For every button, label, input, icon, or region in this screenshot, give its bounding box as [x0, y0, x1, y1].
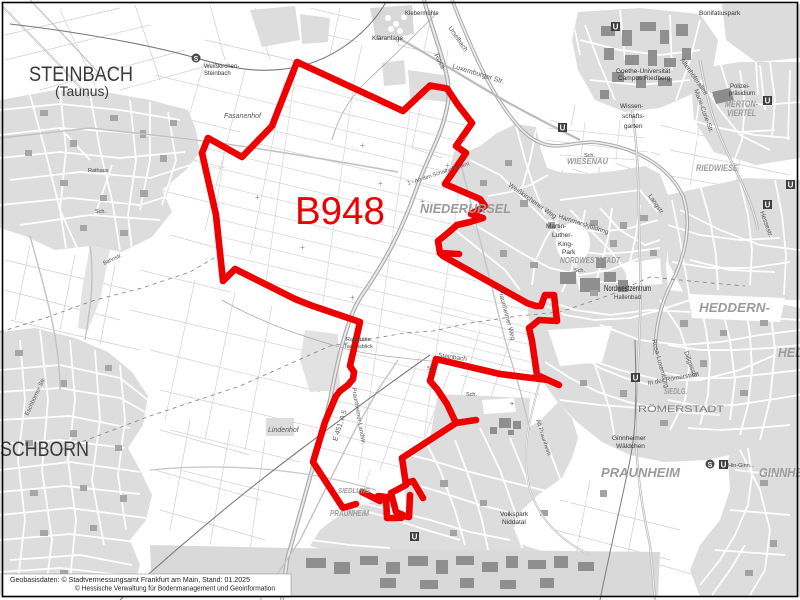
svg-text:Sch.: Sch. — [574, 268, 585, 274]
svg-text:U: U — [765, 97, 771, 106]
svg-text:Park: Park — [562, 249, 576, 256]
svg-text:NIEDERURSEL: NIEDERURSEL — [420, 202, 511, 216]
svg-text:(Taunus): (Taunus) — [55, 83, 109, 99]
svg-text:U: U — [788, 181, 794, 190]
svg-text:U: U — [765, 201, 771, 210]
svg-text:Luther-: Luther- — [552, 232, 573, 239]
svg-text:PRAUNHEIM: PRAUNHEIM — [601, 465, 681, 480]
svg-text:Goethe-Universität: Goethe-Universität — [616, 68, 670, 75]
svg-text:Wissen-: Wissen- — [620, 103, 643, 110]
svg-text:Rathaus: Rathaus — [88, 168, 109, 174]
svg-text:B948: B948 — [295, 190, 385, 233]
svg-text:garten: garten — [624, 123, 643, 130]
svg-text:Taunusblick: Taunusblick — [344, 344, 373, 350]
svg-text:RIEDWIESE: RIEDWIESE — [696, 163, 739, 173]
svg-text:SIEDLUNG: SIEDLUNG — [338, 486, 370, 495]
svg-text:Sch.: Sch. — [466, 392, 477, 398]
svg-text:Sch.: Sch. — [427, 366, 438, 372]
svg-text:+: + — [462, 135, 467, 144]
svg-text:Hallenbad: Hallenbad — [614, 295, 641, 301]
svg-text:schafts-: schafts- — [622, 113, 645, 120]
svg-text:Sch.: Sch. — [584, 153, 595, 159]
svg-text:+: + — [510, 401, 514, 408]
svg-text:SIEDLG.: SIEDLG. — [664, 387, 687, 396]
svg-text:U: U — [721, 461, 727, 470]
svg-text:© Hessische Verwaltung für Bod: © Hessische Verwaltung für Bodenmanageme… — [75, 585, 275, 593]
svg-text:Volkspark: Volkspark — [500, 511, 529, 518]
svg-text:Polizei-: Polizei- — [730, 84, 750, 90]
svg-text:Raststätte: Raststätte — [346, 337, 371, 343]
svg-text:Sch.: Sch. — [95, 209, 106, 215]
svg-text:+: + — [378, 179, 383, 188]
svg-text:Steinbach: Steinbach — [204, 71, 231, 77]
svg-text:+: + — [350, 293, 355, 302]
svg-text:S: S — [708, 462, 713, 469]
svg-text:+: + — [360, 141, 365, 150]
svg-text:HEDDERN-: HEDDERN- — [699, 300, 770, 315]
svg-text:SCHBORN: SCHBORN — [0, 437, 89, 461]
svg-text:präsidium: präsidium — [729, 91, 755, 97]
svg-text:Lindenhof: Lindenhof — [268, 427, 300, 434]
svg-text:Campus Riedberg: Campus Riedberg — [618, 75, 671, 82]
svg-text:Bonifatiuspark: Bonifatiuspark — [699, 10, 741, 17]
svg-text:Hin-Ginn...: Hin-Ginn... — [728, 463, 755, 469]
svg-text:Niddatal: Niddatal — [502, 519, 526, 526]
svg-text:PRAUNHEIM: PRAUNHEIM — [330, 509, 369, 518]
svg-text:VIERTEL: VIERTEL — [727, 108, 756, 118]
svg-text:U: U — [613, 23, 619, 32]
svg-text:Wäldchen: Wäldchen — [616, 443, 645, 450]
svg-text:Ginnheimer: Ginnheimer — [612, 435, 646, 442]
svg-text:Kläranlage: Kläranlage — [372, 35, 403, 42]
svg-text:GINNHE: GINNHE — [759, 465, 800, 480]
svg-text:Weißkirchen-: Weißkirchen- — [204, 64, 239, 70]
svg-text:+: + — [300, 243, 305, 252]
svg-text:NORDWESTSTADT: NORDWESTSTADT — [560, 255, 621, 265]
svg-text:U: U — [633, 374, 639, 383]
svg-text:RÖMERSTADT: RÖMERSTADT — [638, 404, 725, 414]
svg-text:King-: King- — [558, 241, 573, 248]
svg-text:U: U — [412, 533, 418, 542]
svg-text:Fasanenhof: Fasanenhof — [224, 113, 262, 120]
svg-text:Geobasisdaten: © Stadtvermessu: Geobasisdaten: © Stadtvermessungsamt Fra… — [10, 576, 250, 584]
svg-text:S: S — [194, 56, 199, 63]
svg-text:Nordwestzentrum: Nordwestzentrum — [604, 284, 651, 293]
svg-text:Klebermühle: Klebermühle — [405, 11, 439, 17]
svg-text:Martin-: Martin- — [546, 223, 566, 230]
svg-text:+: + — [255, 193, 260, 202]
svg-text:U: U — [560, 124, 566, 133]
